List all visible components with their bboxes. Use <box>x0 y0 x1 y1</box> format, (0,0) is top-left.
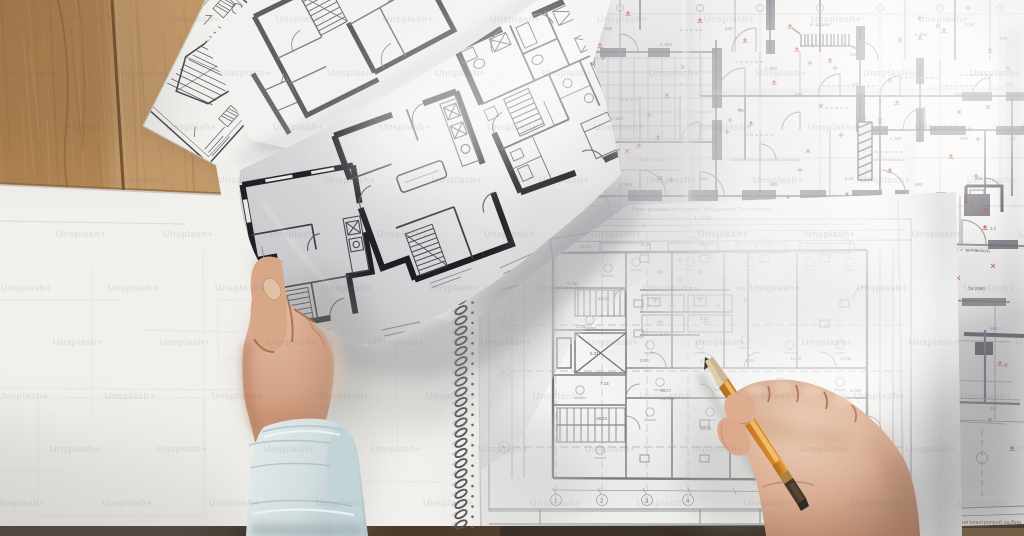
svg-text:Unsplash+: Unsplash+ <box>597 14 648 25</box>
svg-text:Unsplash+: Unsplash+ <box>487 122 538 133</box>
svg-text:Unsplash+: Unsplash+ <box>0 498 45 509</box>
svg-text:Unsplash+: Unsplash+ <box>270 229 321 240</box>
svg-text:Unsplash+: Unsplash+ <box>163 229 214 240</box>
svg-text:Unsplash+: Unsplash+ <box>215 283 266 294</box>
svg-text:Unsplash+: Unsplash+ <box>380 122 431 133</box>
svg-text:Unsplash+: Unsplash+ <box>490 14 541 25</box>
svg-text:Unsplash+: Unsplash+ <box>646 175 697 186</box>
svg-text:Unsplash+: Unsplash+ <box>374 337 425 348</box>
svg-text:Unsplash+: Unsplash+ <box>857 283 908 294</box>
svg-text:Unsplash+: Unsplash+ <box>585 444 636 455</box>
svg-text:Unsplash+: Unsplash+ <box>221 68 272 79</box>
svg-text:Unsplash+: Unsplash+ <box>744 498 795 509</box>
svg-text:Unsplash+: Unsplash+ <box>423 498 474 509</box>
svg-text:Unsplash+: Unsplash+ <box>56 229 107 240</box>
svg-text:Unsplash+: Unsplash+ <box>530 498 581 509</box>
svg-text:Unsplash+: Unsplash+ <box>316 498 367 509</box>
svg-text:Unsplash+: Unsplash+ <box>105 391 156 402</box>
svg-text:Unsplash+: Unsplash+ <box>53 337 104 348</box>
svg-text:Unsplash+: Unsplash+ <box>863 68 914 79</box>
svg-text:Unsplash+: Unsplash+ <box>588 337 639 348</box>
svg-text:Unsplash+: Unsplash+ <box>808 122 859 133</box>
svg-text:Unsplash+: Unsplash+ <box>102 498 153 509</box>
svg-text:Unsplash+: Unsplash+ <box>218 175 269 186</box>
svg-text:Unsplash+: Unsplash+ <box>970 68 1021 79</box>
svg-text:Unsplash+: Unsplash+ <box>912 229 963 240</box>
svg-text:Unsplash+: Unsplash+ <box>484 229 535 240</box>
svg-text:Unsplash+: Unsplash+ <box>637 498 688 509</box>
svg-text:Unsplash+: Unsplash+ <box>169 14 220 25</box>
svg-text:Unsplash+: Unsplash+ <box>7 68 58 79</box>
svg-text:Unsplash+: Unsplash+ <box>753 175 804 186</box>
svg-text:Unsplash+: Unsplash+ <box>111 175 162 186</box>
svg-text:Unsplash+: Unsplash+ <box>264 444 315 455</box>
svg-text:Unsplash+: Unsplash+ <box>478 444 529 455</box>
svg-text:Unsplash+: Unsplash+ <box>383 14 434 25</box>
svg-text:Unsplash+: Unsplash+ <box>704 14 755 25</box>
svg-text:Unsplash+: Unsplash+ <box>692 444 743 455</box>
svg-text:Unsplash+: Unsplash+ <box>958 498 1009 509</box>
svg-text:Unsplash+: Unsplash+ <box>114 68 165 79</box>
svg-text:Unsplash+: Unsplash+ <box>811 14 862 25</box>
svg-text:Unsplash+: Unsplash+ <box>591 229 642 240</box>
svg-text:Unsplash+: Unsplash+ <box>212 391 263 402</box>
svg-text:Unsplash+: Unsplash+ <box>426 391 477 402</box>
svg-text:Unsplash+: Unsplash+ <box>542 68 593 79</box>
svg-text:Unsplash+: Unsplash+ <box>640 391 691 402</box>
svg-text:Unsplash+: Unsplash+ <box>701 122 752 133</box>
svg-text:Unsplash+: Unsplash+ <box>906 444 957 455</box>
svg-text:Unsplash+: Unsplash+ <box>802 337 853 348</box>
svg-text:Unsplash+: Unsplash+ <box>799 444 850 455</box>
svg-text:Unsplash+: Unsplash+ <box>594 122 645 133</box>
svg-text:Unsplash+: Unsplash+ <box>4 175 55 186</box>
svg-text:Unsplash+: Unsplash+ <box>0 14 5 25</box>
svg-text:Unsplash+: Unsplash+ <box>209 498 260 509</box>
svg-text:Unsplash+: Unsplash+ <box>750 283 801 294</box>
svg-text:Unsplash+: Unsplash+ <box>1 283 52 294</box>
svg-text:Unsplash+: Unsplash+ <box>160 337 211 348</box>
svg-text:Unsplash+: Unsplash+ <box>267 337 318 348</box>
svg-text:Unsplash+: Unsplash+ <box>533 391 584 402</box>
svg-text:Unsplash+: Unsplash+ <box>325 175 376 186</box>
svg-text:Unsplash+: Unsplash+ <box>854 391 905 402</box>
svg-text:Unsplash+: Unsplash+ <box>435 68 486 79</box>
svg-text:Unsplash+: Unsplash+ <box>964 283 1015 294</box>
svg-text:Unsplash+: Unsplash+ <box>649 68 700 79</box>
svg-text:Unsplash+: Unsplash+ <box>0 391 48 402</box>
svg-text:Unsplash+: Unsplash+ <box>805 229 856 240</box>
svg-text:Unsplash+: Unsplash+ <box>756 68 807 79</box>
svg-text:Unsplash+: Unsplash+ <box>918 14 969 25</box>
svg-text:Unsplash+: Unsplash+ <box>59 122 110 133</box>
svg-text:Unsplash+: Unsplash+ <box>851 498 902 509</box>
svg-text:Unsplash+: Unsplash+ <box>961 391 1012 402</box>
svg-text:Unsplash+: Unsplash+ <box>50 444 101 455</box>
svg-text:Unsplash+: Unsplash+ <box>0 122 2 133</box>
svg-text:Unsplash+: Unsplash+ <box>108 283 159 294</box>
svg-text:Unsplash+: Unsplash+ <box>319 391 370 402</box>
svg-text:Unsplash+: Unsplash+ <box>860 175 911 186</box>
svg-text:Unsplash+: Unsplash+ <box>166 122 217 133</box>
svg-text:Unsplash+: Unsplash+ <box>967 175 1018 186</box>
svg-text:Unsplash+: Unsplash+ <box>698 229 749 240</box>
svg-text:Unsplash+: Unsplash+ <box>322 283 373 294</box>
svg-text:Unsplash+: Unsplash+ <box>481 337 532 348</box>
svg-text:Unsplash+: Unsplash+ <box>157 444 208 455</box>
svg-text:Unsplash+: Unsplash+ <box>62 14 113 25</box>
svg-text:Unsplash+: Unsplash+ <box>429 283 480 294</box>
svg-text:Unsplash+: Unsplash+ <box>1013 444 1024 455</box>
svg-text:Unsplash+: Unsplash+ <box>1016 337 1024 348</box>
svg-text:Unsplash+: Unsplash+ <box>377 229 428 240</box>
svg-text:Unsplash+: Unsplash+ <box>432 175 483 186</box>
svg-text:Unsplash+: Unsplash+ <box>915 122 966 133</box>
svg-text:Unsplash+: Unsplash+ <box>539 175 590 186</box>
svg-text:Unsplash+: Unsplash+ <box>371 444 422 455</box>
svg-text:Unsplash+: Unsplash+ <box>747 391 798 402</box>
svg-text:Unsplash+: Unsplash+ <box>328 68 379 79</box>
svg-text:Unsplash+: Unsplash+ <box>273 122 324 133</box>
svg-text:Unsplash+: Unsplash+ <box>695 337 746 348</box>
svg-text:Unsplash+: Unsplash+ <box>276 14 327 25</box>
svg-text:Unsplash+: Unsplash+ <box>909 337 960 348</box>
svg-text:Unsplash+: Unsplash+ <box>643 283 694 294</box>
svg-text:Unsplash+: Unsplash+ <box>536 283 587 294</box>
svg-text:Unsplash+: Unsplash+ <box>1019 229 1024 240</box>
